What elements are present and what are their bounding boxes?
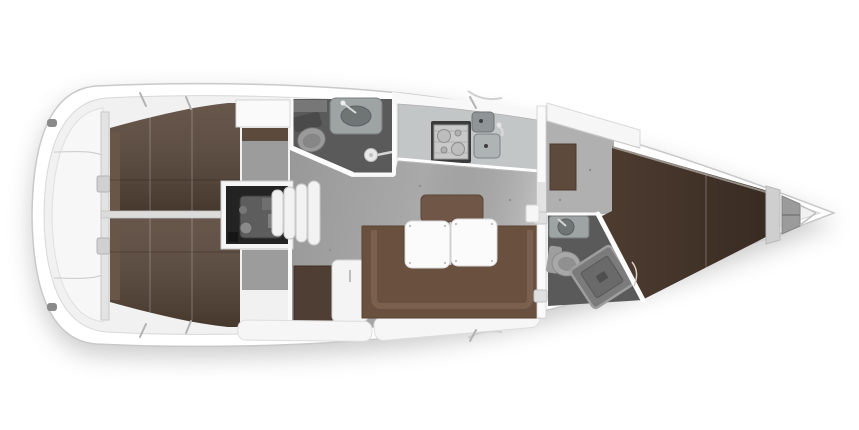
faucet-base [497,123,502,128]
burner-small [441,147,447,153]
hull-lining-panel [238,320,372,341]
settee-backrest [421,195,483,222]
wall-bracket [97,238,110,254]
table-leaf [405,221,450,268]
aft-cabin-locker-port [236,100,290,127]
shower-rose-dot [369,153,373,157]
centerline-wall [101,211,225,218]
step [296,184,307,242]
table-leaf [451,219,497,266]
stern-cleat [47,303,57,311]
burner [438,130,451,143]
step [308,181,320,245]
engine-mount [228,232,238,242]
stove [431,121,471,163]
aft-cabin-floor-starboard [242,250,288,290]
step [272,190,283,236]
wet-room-shelf [293,100,327,112]
aft-cabin-floor-port [242,141,288,185]
burner [452,143,465,156]
door-hinge [534,290,547,302]
berth-shelf-strip [242,128,288,141]
engine-pulley [240,222,252,234]
sink-basin [472,112,494,132]
sink-drain [484,144,488,148]
dinette-table [405,219,497,268]
corner-locker [526,205,539,222]
wall-bracket [97,176,110,192]
chainplate-notch-top [468,91,502,99]
washbasin [549,216,589,238]
berth-headboard [110,132,120,210]
yacht-floor-plan [0,0,859,430]
faucet-base [341,101,346,106]
burner-small [455,130,461,136]
galley [392,92,540,173]
sink-drain [479,119,483,123]
stern-cleat [47,119,57,127]
engine-pulley [239,206,247,214]
nav-locker-brown [294,266,332,322]
washbasin [330,98,382,134]
companionway-steps [272,181,320,245]
basin [341,106,371,126]
berth-headboard [110,222,120,300]
berth-foot-frame [766,186,780,244]
floor-plan-canvas [0,0,859,430]
dresser [550,144,576,190]
step [284,187,295,239]
